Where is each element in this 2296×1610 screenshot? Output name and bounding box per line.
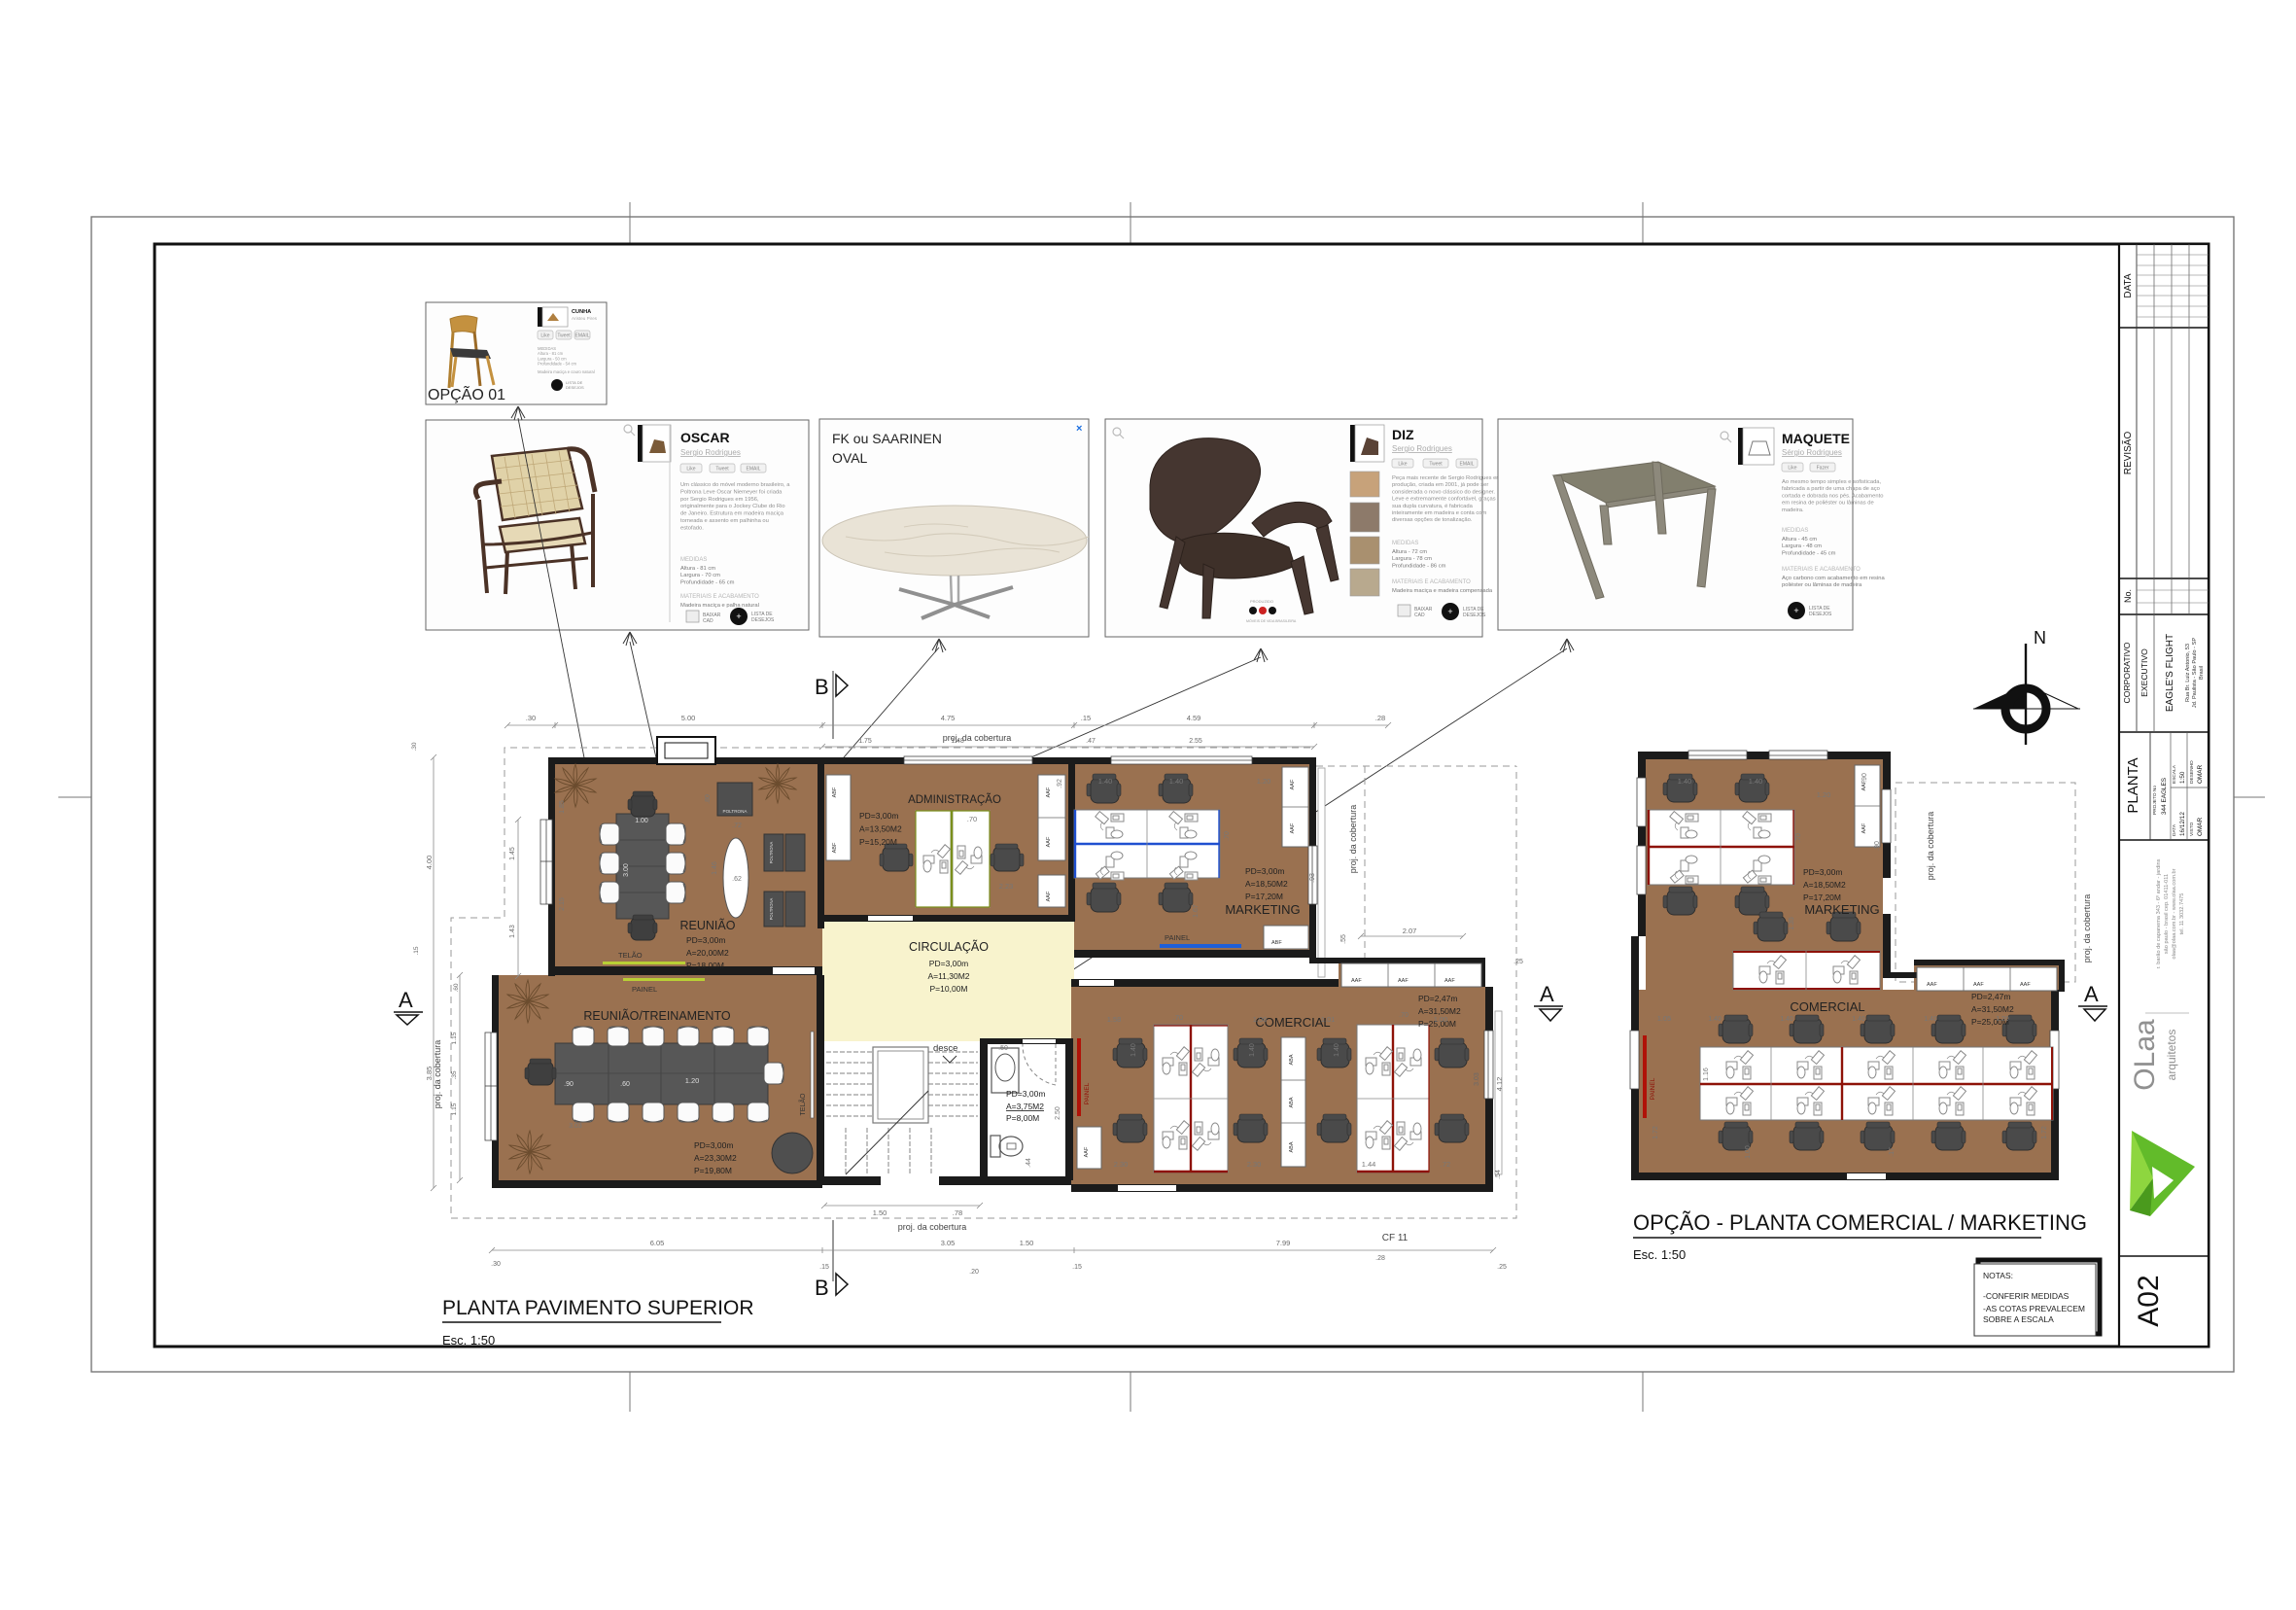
svg-text:Largura - 48 cm: Largura - 48 cm (1782, 543, 1822, 549)
svg-text:A02: A02 (2133, 1275, 2165, 1326)
svg-text:MEDIDAS: MEDIDAS (1782, 528, 1808, 534)
svg-text:AAF: AAF (1084, 1146, 1090, 1157)
svg-text:No.: No. (2123, 589, 2133, 603)
svg-text:OPÇÃO 01: OPÇÃO 01 (428, 384, 505, 403)
svg-text:Largura - 78 cm: Largura - 78 cm (1392, 556, 1432, 562)
svg-text:.47: .47 (1086, 738, 1096, 745)
svg-text:.90: .90 (564, 1081, 574, 1088)
svg-text:.35: .35 (451, 1070, 458, 1079)
svg-text:1.48: 1.48 (951, 738, 964, 745)
svg-text:Sergio Rodrigues: Sergio Rodrigues (1392, 444, 1452, 453)
svg-text:OPÇÃO - PLANTA COMERCIAL / MAR: OPÇÃO - PLANTA COMERCIAL / MARKETING (1633, 1210, 2087, 1235)
svg-text:6.05: 6.05 (650, 1239, 665, 1247)
svg-text:16/12/12: 16/12/12 (2179, 812, 2186, 836)
svg-text:P=15,20M: P=15,20M (859, 837, 897, 847)
svg-text:A: A (399, 988, 413, 1012)
svg-text:Tweet: Tweet (715, 467, 729, 472)
svg-text:.15: .15 (413, 946, 420, 955)
svg-text:B: B (815, 1276, 829, 1300)
svg-text:PAINEL: PAINEL (1084, 1082, 1091, 1104)
svg-text:N: N (2034, 628, 2046, 647)
svg-text:Esc. 1:50: Esc. 1:50 (1633, 1247, 1686, 1262)
svg-text:-AS COTAS PREVALECEM: -AS COTAS PREVALECEM (1983, 1304, 2085, 1313)
svg-text:PAINEL: PAINEL (632, 985, 657, 994)
svg-text:A: A (2084, 982, 2099, 1006)
svg-text:P=8,00M: P=8,00M (1006, 1113, 1039, 1123)
svg-text:Like: Like (1788, 466, 1796, 472)
svg-text:NOTAS:: NOTAS: (1983, 1271, 2013, 1280)
svg-text:.15: .15 (819, 1264, 829, 1271)
svg-text:.15: .15 (1081, 714, 1091, 722)
svg-text:REUNIÃO: REUNIÃO (680, 919, 736, 932)
svg-text:.72: .72 (732, 822, 742, 829)
svg-text:4.00: 4.00 (425, 856, 434, 870)
svg-text:.93: .93 (1309, 873, 1316, 883)
svg-text:Madeira maciça e madeira compe: Madeira maciça e madeira compensada (1392, 588, 1493, 594)
svg-text:AAF: AAF (1351, 978, 1362, 984)
svg-text:AAF: AAF (1861, 822, 1867, 833)
svg-text:A=31,50M2: A=31,50M2 (1971, 1004, 2014, 1014)
svg-text:Altura - 45 cm: Altura - 45 cm (1782, 537, 1817, 542)
svg-text:poliéster ou lâminas de madeir: poliéster ou lâminas de madeira (1782, 582, 1862, 588)
svg-text:.15: .15 (1072, 1264, 1082, 1271)
svg-text:1.40: 1.40 (1852, 1016, 1865, 1023)
svg-text:CAD: CAD (1414, 612, 1425, 618)
svg-text:Sérgio Rodrigues: Sérgio Rodrigues (1782, 448, 1842, 457)
svg-text:proj. da cobertura: proj. da cobertura (898, 1222, 967, 1232)
svg-text:A=11,30M2: A=11,30M2 (927, 971, 969, 981)
svg-text:proj. da cobertura: proj. da cobertura (1926, 812, 1935, 881)
svg-text:DESEJOS: DESEJOS (1809, 612, 1832, 617)
svg-text:Aristeu Pires: Aristeu Pires (572, 316, 598, 321)
svg-text:P=17,20M: P=17,20M (1803, 892, 1841, 902)
svg-text:POLTRONA: POLTRONA (769, 841, 774, 863)
svg-text:.78: .78 (953, 1208, 962, 1217)
svg-text:desce: desce (933, 1043, 957, 1054)
svg-text:MATERIAIS E ACABAMENTO: MATERIAIS E ACABAMENTO (1392, 579, 1471, 585)
svg-text:torneada e assento em palhinha: torneada e assento em palhinha ou (680, 518, 769, 524)
svg-text:CIRCULAÇÃO: CIRCULAÇÃO (909, 940, 989, 954)
svg-text:proj. da cobertura: proj. da cobertura (2082, 894, 2092, 963)
svg-text:1.15: 1.15 (451, 1032, 458, 1044)
svg-text:r. barão de capanema 343 - 6º: r. barão de capanema 343 - 6º andar - ja… (2155, 858, 2162, 968)
svg-text:1.40: 1.40 (1169, 777, 1184, 786)
svg-text:Leve e extremamente confortáve: Leve e extremamente confortável, graças … (1392, 497, 1501, 503)
svg-text:.54: .54 (1495, 1170, 1502, 1179)
svg-text:PD=3,00m: PD=3,00m (859, 811, 898, 821)
svg-text:1.72: 1.72 (1652, 1126, 1659, 1139)
svg-text:1.20: 1.20 (1817, 790, 1831, 799)
svg-text:sua dupla curvatura, é fabrica: sua dupla curvatura, é fabricada (1392, 504, 1474, 509)
svg-text:EAGLE'S FLIGHT: EAGLE'S FLIGHT (2165, 634, 2175, 712)
svg-text:Like: Like (1398, 462, 1407, 468)
svg-text:tel. 11 3032.7475: tel. 11 3032.7475 (2179, 893, 2185, 935)
svg-text:.44: .44 (1026, 1158, 1032, 1168)
svg-text:PD=2,47m: PD=2,47m (1418, 994, 1457, 1003)
svg-text:PD=3,00m: PD=3,00m (1006, 1089, 1045, 1099)
svg-text:TELÃO: TELÃO (618, 951, 643, 960)
svg-text:1.15: 1.15 (451, 1102, 458, 1115)
svg-text:1.35: 1.35 (1789, 917, 1795, 930)
svg-text:.60: .60 (620, 1081, 630, 1088)
svg-text:.70: .70 (1173, 1013, 1183, 1022)
svg-text:1.50: 1.50 (873, 1208, 887, 1217)
svg-text:MATERIAIS E ACABAMENTO: MATERIAIS E ACABAMENTO (1782, 567, 1861, 573)
svg-text:diversas opções de tonalização: diversas opções de tonalização. (1392, 517, 1473, 523)
svg-text:Poltrona Leve Oscar Niemeyer f: Poltrona Leve Oscar Niemeyer foi criada (680, 489, 783, 495)
svg-text:PD=3,00m: PD=3,00m (1245, 866, 1284, 876)
svg-text:MARKETING: MARKETING (1804, 902, 1879, 917)
svg-text:ABA: ABA (1289, 1054, 1295, 1065)
svg-text:FK ou SAARINEN: FK ou SAARINEN (832, 431, 942, 446)
svg-text:PD=2,47m: PD=2,47m (1971, 992, 2010, 1001)
svg-text:produção, criada em 2001, já p: produção, criada em 2001, já pode ser (1392, 482, 1488, 488)
svg-text:Tweet: Tweet (557, 333, 571, 339)
svg-text:2.55: 2.55 (1189, 738, 1202, 745)
svg-text:OMAR: OMAR (2197, 817, 2204, 836)
svg-text:Fazer: Fazer (1817, 466, 1829, 472)
svg-text:1.06: 1.06 (1253, 1015, 1268, 1024)
svg-text:1.85: 1.85 (559, 800, 566, 814)
svg-text:P=18,00M: P=18,00M (686, 961, 724, 970)
svg-text:ABA: ABA (1289, 1097, 1295, 1107)
svg-text:2.50: 2.50 (1055, 1106, 1061, 1120)
svg-text:Madeira maciça e palha natural: Madeira maciça e palha natural (680, 603, 759, 609)
svg-text:MARKETING: MARKETING (1225, 902, 1300, 917)
svg-text:2.15: 2.15 (559, 897, 566, 911)
svg-text:1.67: 1.67 (1193, 904, 1200, 918)
svg-text:REUNIÃO/TREINAMENTO: REUNIÃO/TREINAMENTO (583, 1009, 730, 1023)
svg-text:DESEJOS: DESEJOS (751, 617, 775, 623)
svg-text:.25: .25 (1513, 959, 1523, 965)
svg-text:A=18,50M2: A=18,50M2 (1245, 879, 1288, 889)
svg-text:3.85: 3.85 (425, 1067, 434, 1081)
svg-text:1.40: 1.40 (1924, 1016, 1937, 1023)
svg-text:inteiramente em madeira e cont: inteiramente em madeira e conta com (1392, 510, 1486, 516)
svg-text:ADMINISTRAÇÃO: ADMINISTRAÇÃO (908, 793, 1001, 806)
svg-text:1.40: 1.40 (1678, 777, 1692, 786)
svg-text:REVISÃO: REVISÃO (2121, 432, 2134, 475)
svg-text:AAF: AAF (1444, 978, 1455, 984)
svg-text:AAF: AAF (1046, 836, 1052, 847)
svg-text:COMERCIAL: COMERCIAL (1790, 999, 1864, 1014)
svg-text:AAF: AAF (2020, 982, 2031, 988)
svg-text:.70: .70 (967, 815, 977, 823)
svg-text:AAF: AAF (1398, 978, 1409, 984)
svg-text:1.58: 1.58 (1107, 1015, 1122, 1024)
svg-text:AAF: AAF (1046, 891, 1052, 901)
svg-text:.60: .60 (453, 983, 460, 992)
svg-text:Um clássico do móvel moderno b: Um clássico do móvel moderno brasileiro,… (680, 482, 790, 488)
svg-text:.25: .25 (1497, 1264, 1507, 1271)
svg-text:3.05: 3.05 (941, 1239, 956, 1247)
svg-text:EMAIL: EMAIL (574, 333, 589, 339)
svg-text:.50: .50 (998, 1045, 1008, 1052)
svg-text:.55: .55 (1340, 934, 1347, 944)
svg-text:P=10,00M: P=10,00M (930, 984, 968, 994)
svg-text:.62: .62 (732, 876, 742, 883)
svg-text:proj. da cobertura: proj. da cobertura (433, 1040, 442, 1109)
svg-text:OLaa: OLaa (2129, 1019, 2161, 1091)
svg-text:-CONFERIR MEDIDAS: -CONFERIR MEDIDAS (1983, 1291, 2070, 1301)
svg-text:.80: .80 (705, 794, 712, 804)
svg-text:1.20: 1.20 (1257, 777, 1271, 786)
svg-text:1.40: 1.40 (1708, 1016, 1722, 1023)
svg-text:PAINEL: PAINEL (1650, 1077, 1656, 1100)
svg-text:2.30: 2.30 (1114, 1160, 1129, 1169)
svg-text:1.40: 1.40 (1131, 1043, 1137, 1057)
svg-text:.92: .92 (1057, 779, 1063, 788)
svg-text:PD=3,00m: PD=3,00m (929, 959, 968, 968)
svg-text:3.00: 3.00 (623, 863, 630, 877)
svg-text:MEDIDAS: MEDIDAS (1392, 541, 1418, 546)
svg-text:por Sergio Rodrigues em 1956,: por Sergio Rodrigues em 1956, (680, 497, 759, 503)
svg-text:.90: .90 (1874, 841, 1881, 851)
svg-text:A: A (1540, 982, 1554, 1006)
svg-text:de Janeiro. Estrutura em madei: de Janeiro. Estrutura em madeira maciça (680, 511, 784, 517)
svg-text:Profundidade - 45 cm: Profundidade - 45 cm (1782, 550, 1836, 556)
svg-text:MAQUETE: MAQUETE (1782, 431, 1850, 446)
svg-text:DESEJOS: DESEJOS (566, 385, 584, 390)
svg-text:Altura - 72 cm: Altura - 72 cm (1392, 549, 1427, 555)
svg-text:P=17,20M: P=17,20M (1245, 892, 1283, 901)
svg-text:B: B (815, 675, 829, 699)
svg-text:5.00: 5.00 (681, 714, 696, 722)
svg-text:Esc. 1:50: Esc. 1:50 (442, 1333, 495, 1347)
svg-text:+: + (1793, 606, 1798, 615)
svg-text:1.46: 1.46 (712, 861, 718, 875)
svg-text:em resina de poliéster ou lâmi: em resina de poliéster ou lâminas de (1782, 501, 1874, 507)
svg-text:Altura - 81 cm: Altura - 81 cm (680, 566, 715, 572)
svg-text:Rua Br. Luiz Antonio, 53: Rua Br. Luiz Antonio, 53 (2185, 644, 2191, 702)
svg-text:4.59: 4.59 (1187, 714, 1201, 722)
svg-text:originalmente para o Jockey Cl: originalmente para o Jockey Clube do Rio (680, 504, 785, 509)
svg-text:P=19,80M: P=19,80M (694, 1166, 732, 1175)
svg-text:.20: .20 (969, 1269, 979, 1276)
svg-text:1.00: 1.00 (635, 818, 648, 824)
svg-text:AAF: AAF (1927, 982, 1937, 988)
svg-text:1.45: 1.45 (509, 847, 516, 860)
svg-text:cortada e dobrada nos pés. Aca: cortada e dobrada nos pés. Acabamento (1782, 493, 1883, 499)
svg-text:CUNHA: CUNHA (572, 309, 591, 315)
svg-text:Profundidade - 65 cm: Profundidade - 65 cm (680, 579, 735, 585)
svg-text:A=13,50M2: A=13,50M2 (859, 824, 902, 834)
svg-text:VISTO: VISTO (2189, 822, 2195, 836)
svg-text:madeira.: madeira. (1782, 507, 1804, 513)
svg-text:EXECUTIVO: EXECUTIVO (2139, 648, 2149, 697)
svg-text:1.00: 1.00 (1434, 1015, 1448, 1024)
svg-text:OSCAR: OSCAR (680, 430, 730, 445)
svg-text:Jd. Paulista - São Paulo - SP: Jd. Paulista - São Paulo - SP (2192, 638, 2198, 708)
svg-text:.70: .70 (1795, 833, 1802, 843)
svg-text:EMAIL: EMAIL (746, 467, 760, 472)
svg-text:3.03: 3.03 (569, 1123, 582, 1130)
svg-text:OVAL: OVAL (832, 450, 868, 466)
svg-text:1.05: 1.05 (1657, 1014, 1672, 1023)
svg-text:344 EAGLES: 344 EAGLES (2161, 778, 2168, 815)
svg-text:MEDIDAS: MEDIDAS (680, 557, 707, 563)
svg-text:1.44: 1.44 (1362, 1160, 1376, 1169)
svg-text:PD=3,00m: PD=3,00m (694, 1140, 733, 1150)
svg-text:POLTRONA: POLTRONA (723, 809, 748, 814)
svg-text:SOBRE A ESCALA: SOBRE A ESCALA (1983, 1314, 2054, 1324)
svg-text:Ao mesmo tempo simples e sofis: Ao mesmo tempo simples e sofisticada, (1782, 479, 1882, 485)
svg-text:2.23: 2.23 (999, 882, 1014, 891)
svg-text:PD=3,00m: PD=3,00m (1803, 867, 1842, 877)
svg-text:DATA: DATA (2172, 823, 2177, 836)
svg-text:Profundidade - 86 cm: Profundidade - 86 cm (1392, 563, 1446, 569)
svg-text:ABF: ABF (832, 787, 838, 797)
svg-text:são paulo - brasil cep. 01411: são paulo - brasil cep. 01411-011 (2164, 874, 2170, 954)
svg-text:1.40: 1.40 (1249, 1043, 1256, 1057)
svg-text:+: + (1447, 607, 1452, 616)
svg-text:PAINEL: PAINEL (1165, 933, 1190, 942)
svg-text:1.72: 1.72 (2041, 1126, 2048, 1139)
svg-text:1.40: 1.40 (1780, 1016, 1793, 1023)
svg-text:MÓVEIS DE VIDA BRASILEIRA: MÓVEIS DE VIDA BRASILEIRA (1246, 618, 1297, 623)
svg-text:ESCALA: ESCALA (2172, 764, 2177, 784)
svg-text:proj. da cobertura: proj. da cobertura (1348, 805, 1358, 874)
svg-text:Peça mais recente de Sergio Ro: Peça mais recente de Sergio Rodrigues em (1392, 475, 1501, 481)
svg-text:PROJETO No: PROJETO No (2152, 786, 2158, 815)
svg-text:2.30: 2.30 (1247, 1160, 1262, 1169)
svg-text:1.43: 1.43 (509, 925, 516, 938)
svg-text:DATA: DATA (2123, 273, 2134, 298)
svg-text:AAF: AAF (1290, 779, 1296, 789)
svg-text:4.12: 4.12 (1495, 1077, 1504, 1092)
svg-text:3.03: 3.03 (1474, 1072, 1480, 1086)
svg-text:7.99: 7.99 (1276, 1239, 1291, 1247)
svg-text:AAF: AAF (1290, 822, 1296, 833)
svg-text:estofado.: estofado. (680, 525, 704, 531)
svg-text:A=3,75M2: A=3,75M2 (1006, 1102, 1044, 1111)
svg-text:arquitetos: arquitetos (2165, 1030, 2178, 1081)
svg-text:.30: .30 (411, 742, 418, 751)
svg-text:Madeira maciça e couro natural: Madeira maciça e couro natural (538, 369, 595, 374)
svg-text:1:50: 1:50 (2179, 771, 2186, 784)
svg-text:.30: .30 (491, 1261, 501, 1268)
svg-text:.28: .28 (1375, 1255, 1385, 1262)
svg-text:ABA: ABA (1289, 1141, 1295, 1152)
svg-text:1.00: 1.00 (1745, 1145, 1752, 1159)
svg-text:1.75: 1.75 (858, 738, 872, 745)
svg-text:1.40: 1.40 (1749, 777, 1763, 786)
svg-text:1.20: 1.20 (685, 1076, 700, 1085)
svg-text:.28: .28 (1375, 714, 1385, 722)
svg-text:ABF: ABF (832, 842, 838, 853)
svg-text:×: × (1076, 423, 1082, 435)
svg-text:1.20: 1.20 (1996, 1016, 2009, 1023)
svg-text:Like: Like (540, 333, 549, 339)
svg-text:A=20,00M2: A=20,00M2 (686, 948, 729, 958)
svg-text:Largura - 70 cm: Largura - 70 cm (680, 573, 720, 578)
svg-text:Sergio Rodrigues: Sergio Rodrigues (680, 448, 741, 457)
svg-text:.90: .90 (1861, 773, 1868, 783)
svg-text:.30: .30 (526, 714, 536, 722)
svg-text:PRODUZIDO: PRODUZIDO (1250, 599, 1273, 604)
svg-text:.70: .70 (1224, 831, 1231, 841)
svg-text:1.16: 1.16 (1703, 1067, 1710, 1081)
svg-text:OMAR: OMAR (2197, 764, 2204, 784)
svg-text:DESENHO: DESENHO (2189, 760, 2195, 784)
svg-text:PLANTA PAVIMENTO SUPERIOR: PLANTA PAVIMENTO SUPERIOR (442, 1297, 754, 1319)
svg-text:olaa@olaa.com.br - www.olaa.co: olaa@olaa.com.br - www.olaa.com.br (2172, 868, 2177, 959)
svg-text:.72: .72 (1441, 1160, 1450, 1169)
svg-text:Tweet: Tweet (1429, 462, 1443, 468)
svg-text:+: + (736, 612, 741, 621)
svg-text:MATERIAIS E ACABAMENTO: MATERIAIS E ACABAMENTO (680, 594, 759, 600)
svg-text:1.40: 1.40 (1098, 777, 1113, 786)
svg-text:Profundidade - 54 cm: Profundidade - 54 cm (538, 362, 577, 367)
svg-text:AAF: AAF (1973, 982, 1984, 988)
svg-text:1.50: 1.50 (1020, 1239, 1034, 1247)
svg-text:DIZ: DIZ (1392, 427, 1414, 442)
svg-text:1.40: 1.40 (1334, 1043, 1340, 1057)
svg-text:Brasil: Brasil (2199, 666, 2205, 680)
svg-text:ABF: ABF (1271, 940, 1282, 946)
svg-text:Aço carbono com acabamento em: Aço carbono com acabamento em resina (1782, 576, 1885, 581)
svg-text:CF 11: CF 11 (1382, 1233, 1409, 1243)
svg-text:PD=3,00m: PD=3,00m (686, 935, 725, 945)
svg-text:4.75: 4.75 (941, 714, 956, 722)
svg-text:A=18,50M2: A=18,50M2 (1803, 880, 1846, 890)
svg-text:A=23,30M2: A=23,30M2 (694, 1153, 737, 1163)
svg-text:fabricada a partir de uma chap: fabricada a partir de uma chapa de aço (1782, 486, 1880, 492)
svg-text:.17: .17 (1889, 1147, 1896, 1157)
svg-text:CAD: CAD (703, 618, 713, 624)
svg-text:TELÃO: TELÃO (798, 1093, 807, 1116)
svg-text:POLTRONA: POLTRONA (769, 897, 774, 920)
svg-text:PLANTA: PLANTA (2125, 757, 2141, 813)
svg-text:considerada o novo clássico do: considerada o novo clássico do designer. (1392, 489, 1495, 495)
svg-text:.70: .70 (1399, 1012, 1409, 1019)
svg-text:CORPORATIVO: CORPORATIVO (2122, 642, 2132, 703)
svg-text:DESEJOS: DESEJOS (1463, 612, 1486, 618)
svg-text:EMAIL: EMAIL (1459, 462, 1474, 468)
svg-text:AAF: AAF (1046, 787, 1052, 797)
svg-text:1.01: 1.01 (1321, 1015, 1336, 1024)
svg-text:Like: Like (686, 467, 695, 472)
svg-text:2.07: 2.07 (1403, 927, 1417, 935)
